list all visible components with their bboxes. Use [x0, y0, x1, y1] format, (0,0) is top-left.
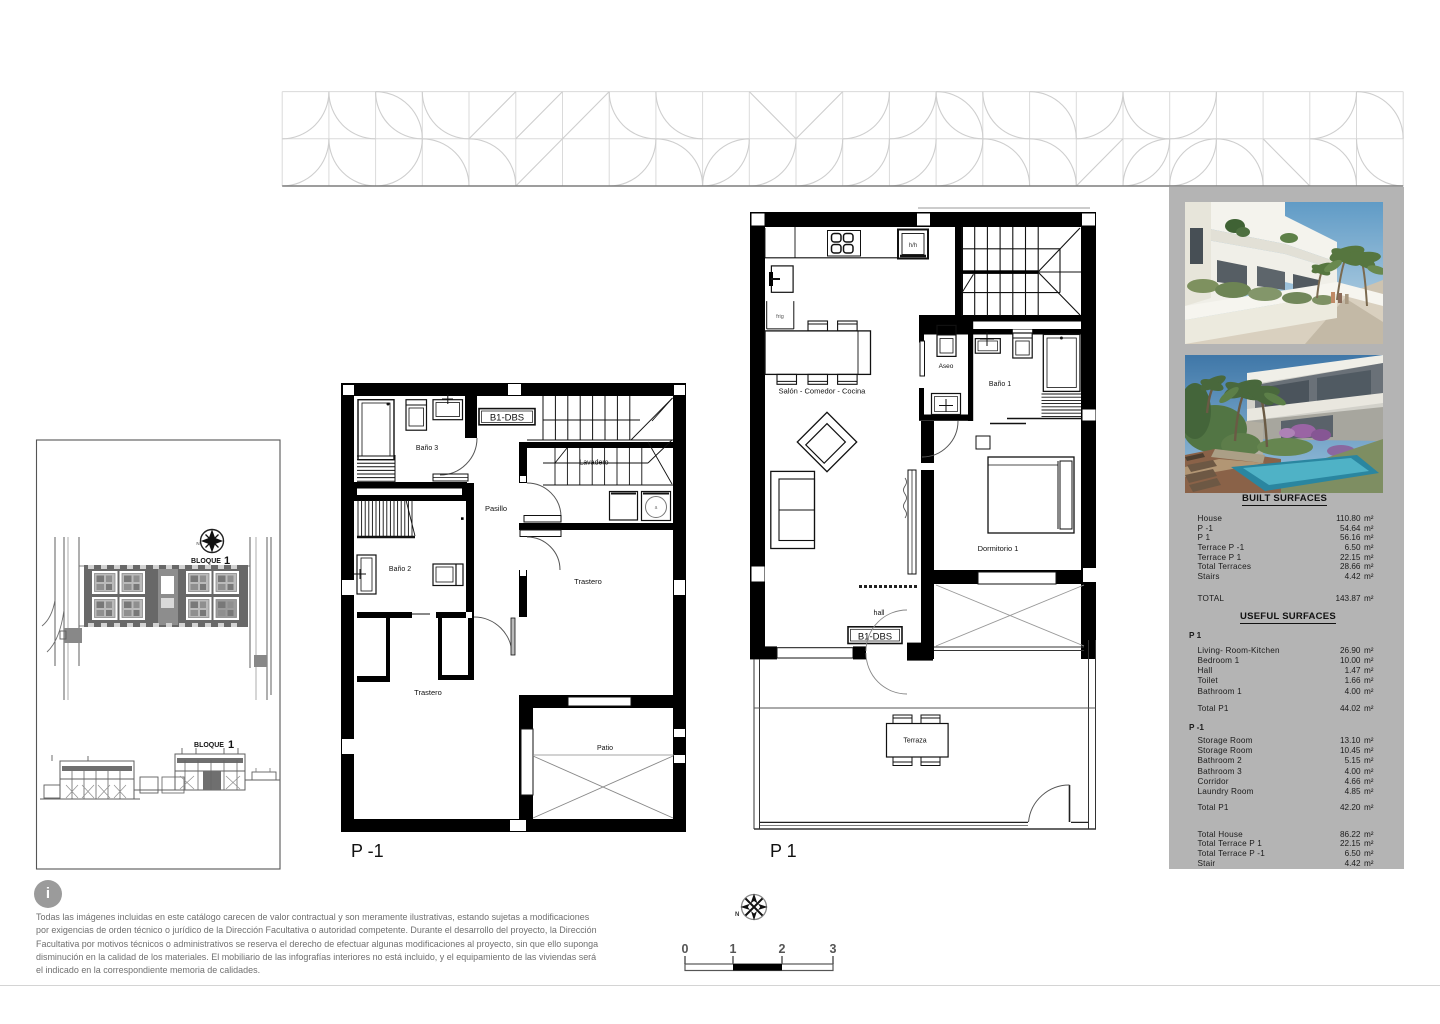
svg-text:B1-DBS: B1-DBS: [490, 413, 524, 424]
svg-text:BLOQUE: BLOQUE: [191, 558, 221, 565]
svg-text:2: 2: [779, 942, 786, 956]
svg-text:0: 0: [682, 942, 689, 956]
svg-text:N: N: [735, 912, 739, 918]
svg-text:hall: hall: [874, 610, 885, 617]
svg-text:Trastero: Trastero: [574, 577, 602, 586]
svg-text:1: 1: [228, 739, 234, 751]
svg-text:Aseo: Aseo: [939, 363, 954, 370]
svg-text:3: 3: [830, 942, 837, 956]
svg-text:Terraza: Terraza: [903, 738, 926, 745]
svg-text:Baño 1: Baño 1: [989, 381, 1011, 388]
svg-text:Salón - Comedor - Cocina: Salón - Comedor - Cocina: [779, 387, 867, 396]
svg-text:B1-DBS: B1-DBS: [858, 631, 892, 642]
svg-text:h/h: h/h: [909, 243, 917, 249]
svg-text:1: 1: [224, 555, 230, 567]
svg-text:frig: frig: [776, 314, 784, 320]
svg-text:Patio: Patio: [597, 745, 613, 752]
svg-text:Dormitorio 1: Dormitorio 1: [978, 544, 1019, 553]
svg-text:BLOQUE: BLOQUE: [194, 742, 224, 749]
svg-text:N: N: [196, 541, 199, 546]
svg-text:Pasillo: Pasillo: [485, 504, 507, 513]
svg-text:Trastero: Trastero: [414, 688, 442, 697]
svg-text:1: 1: [730, 942, 737, 956]
svg-text:Lavadero: Lavadero: [579, 460, 608, 467]
svg-text:P 1: P 1: [770, 841, 797, 861]
svg-text:P -1: P -1: [351, 841, 384, 861]
svg-text:Baño 2: Baño 2: [389, 566, 411, 573]
svg-text:a: a: [655, 505, 658, 511]
svg-text:Baño 3: Baño 3: [416, 445, 438, 452]
